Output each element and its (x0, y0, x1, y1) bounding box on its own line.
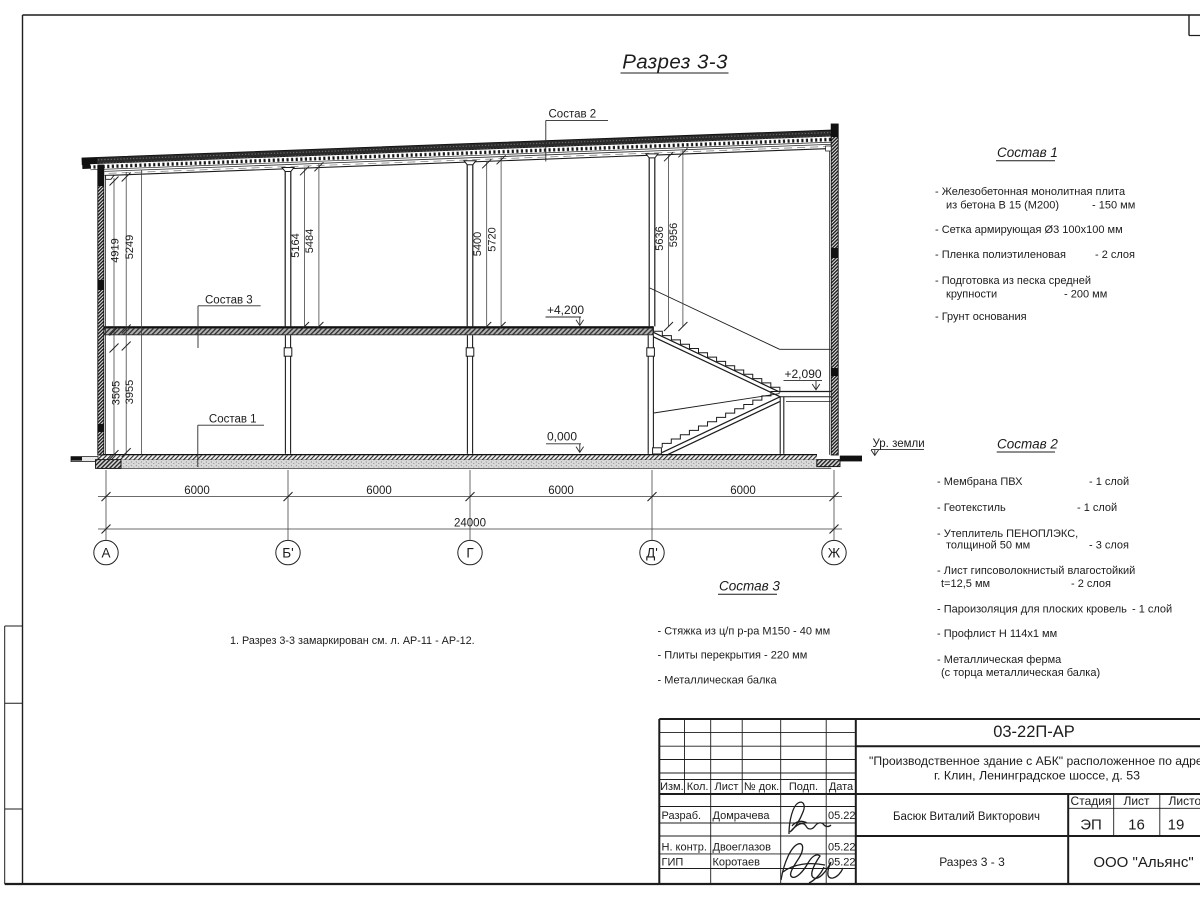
svg-text:- 1 слой: - 1 слой (1132, 604, 1172, 616)
svg-text:ЭП: ЭП (1080, 817, 1102, 834)
svg-text:- Грунт основания: - Грунт основания (935, 311, 1027, 323)
svg-text:- Профлист Н 114х1 мм: - Профлист Н 114х1 мм (937, 628, 1057, 640)
svg-text:Состав 2: Состав 2 (549, 109, 597, 121)
svg-text:6000: 6000 (366, 485, 392, 497)
svg-text:Домрачева: Домрачева (713, 810, 771, 822)
svg-text:- Пароизоляция для плоских кро: - Пароизоляция для плоских кровель (937, 604, 1127, 616)
svg-text:Б': Б' (282, 545, 293, 560)
svg-text:- 1 слой: - 1 слой (1089, 476, 1129, 488)
svg-text:Н. контр.: Н. контр. (662, 842, 707, 854)
svg-text:5484: 5484 (304, 229, 316, 253)
svg-text:05.22: 05.22 (828, 857, 856, 869)
svg-text:Стадия: Стадия (1071, 794, 1112, 808)
svg-text:3955: 3955 (124, 380, 136, 404)
svg-text:6000: 6000 (184, 485, 210, 497)
svg-text:6000: 6000 (730, 485, 756, 497)
svg-text:- Стяжка из ц/п р-ра М150 - 40: - Стяжка из ц/п р-ра М150 - 40 мм (658, 626, 831, 638)
svg-text:- Пленка полиэтиленовая: - Пленка полиэтиленовая (935, 249, 1066, 261)
svg-text:- 2 слоя: - 2 слоя (1071, 578, 1111, 590)
svg-text:5400: 5400 (472, 232, 484, 256)
svg-text:Изм.: Изм. (660, 781, 684, 793)
svg-text:05.22: 05.22 (828, 842, 856, 854)
svg-text:- Железобетонная монолитная п: - Железобетонная монолитная плита (935, 186, 1126, 198)
svg-text:- Металлическая балка: - Металлическая балка (658, 675, 778, 687)
svg-text:Двоеглазов: Двоеглазов (713, 842, 772, 854)
svg-text:0,000: 0,000 (547, 430, 577, 444)
svg-text:Коротаев: Коротаев (713, 857, 761, 869)
svg-text:Разраб.: Разраб. (662, 810, 702, 822)
svg-text:- Мембрана ПВХ: - Мембрана ПВХ (937, 476, 1023, 488)
svg-text:Ур. земли: Ур. земли (873, 438, 925, 450)
svg-text:5956: 5956 (668, 223, 680, 247)
svg-text:24000: 24000 (454, 517, 486, 529)
svg-text:ООО "Альянс": ООО "Альянс" (1093, 854, 1193, 871)
svg-text:Г: Г (466, 545, 474, 560)
svg-text:- 2 слоя: - 2 слоя (1095, 249, 1135, 261)
svg-text:Дата: Дата (829, 781, 854, 793)
svg-text:Кол.: Кол. (687, 781, 709, 793)
svg-text:г. Клин, Ленинградское шоссе,: г. Клин, Ленинградское шоссе, д. 53 (934, 769, 1140, 783)
svg-text:Разрез 3 - 3: Разрез 3 - 3 (939, 855, 1005, 869)
svg-text:+4,200: +4,200 (547, 303, 584, 317)
svg-text:5720: 5720 (486, 227, 498, 251)
svg-text:16: 16 (1128, 817, 1145, 834)
svg-text:- 3 слоя: - 3 слоя (1089, 540, 1129, 552)
svg-text:- Лист гипсоволокнистый влагос: - Лист гипсоволокнистый влагостойкий (937, 565, 1135, 577)
svg-text:05.22: 05.22 (828, 810, 856, 822)
svg-text:3505: 3505 (111, 381, 123, 405)
svg-text:- Подготовка из песка средней: - Подготовка из песка средней (935, 275, 1091, 287)
svg-text:Состав 2: Состав 2 (997, 437, 1058, 452)
svg-text:крупности: крупности (946, 289, 997, 301)
svg-text:5249: 5249 (124, 235, 136, 259)
svg-text:"Производственное здание с АБК: "Производственное здание с АБК" располож… (869, 754, 1200, 768)
svg-text:t=12,5 мм: t=12,5 мм (941, 578, 990, 590)
svg-text:- Плиты перекрытия - 220 мм: - Плиты перекрытия - 220 мм (658, 650, 808, 662)
svg-text:толщиной 50 мм: толщиной 50 мм (946, 540, 1030, 552)
svg-text:- Утеплитель ПЕНОПЛЭКС,: - Утеплитель ПЕНОПЛЭКС, (937, 528, 1078, 540)
svg-text:Ж: Ж (828, 545, 841, 560)
svg-text:- 1 слой: - 1 слой (1077, 502, 1117, 514)
svg-text:Д': Д' (646, 545, 658, 560)
svg-text:4919: 4919 (110, 238, 122, 262)
svg-text:03-22П-АР: 03-22П-АР (993, 723, 1075, 741)
svg-text:- Металлическая ферма: - Металлическая ферма (937, 654, 1062, 666)
svg-text:19: 19 (1168, 817, 1185, 834)
svg-text:Состав 3: Состав 3 (205, 295, 253, 307)
svg-text:из бетона В 15 (М200): из бетона В 15 (М200) (946, 200, 1059, 212)
svg-text:Состав 3: Состав 3 (719, 579, 780, 594)
svg-text:Состав 1: Состав 1 (209, 414, 257, 426)
svg-text:Состав 1: Состав 1 (997, 145, 1058, 160)
svg-text:Разрез 3-3: Разрез 3-3 (622, 51, 728, 74)
svg-text:№ док.: № док. (744, 781, 779, 793)
svg-text:+2,090: +2,090 (785, 367, 822, 381)
svg-text:- Геотекстиль: - Геотекстиль (937, 502, 1006, 514)
svg-text:Подп.: Подп. (789, 781, 818, 793)
svg-text:1. Разрез 3-3 замаркирован см.: 1. Разрез 3-3 замаркирован см. л. АР-11 … (230, 635, 475, 647)
svg-text:Лист: Лист (1123, 794, 1150, 808)
svg-text:ГИП: ГИП (662, 857, 684, 869)
svg-text:- 200 мм: - 200 мм (1064, 289, 1107, 301)
svg-text:(с торца металлическая балка): (с торца металлическая балка) (941, 667, 1100, 679)
svg-text:- 150 мм: - 150 мм (1092, 200, 1135, 212)
svg-text:А: А (101, 545, 110, 560)
svg-text:- Сетка армирующая Ø3 100х100: - Сетка армирующая Ø3 100х100 мм (935, 224, 1123, 236)
svg-text:Лист: Лист (715, 781, 739, 793)
svg-text:Басюк Виталий Викторович: Басюк Виталий Викторович (893, 811, 1040, 823)
svg-text:5636: 5636 (654, 226, 666, 250)
svg-text:Листов: Листов (1169, 794, 1200, 808)
svg-text:5164: 5164 (290, 233, 302, 257)
svg-text:6000: 6000 (548, 485, 574, 497)
